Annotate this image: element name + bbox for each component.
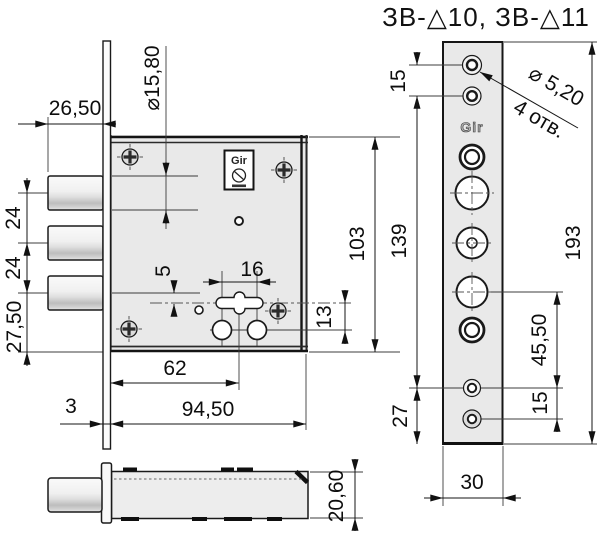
dim-30: 30 [424, 446, 521, 506]
dim-20-60-text: 20,60 [325, 470, 348, 523]
dim-left-chain: 24 24 27,50 [2, 178, 27, 366]
deadbolt-2 [48, 226, 103, 260]
dim-103-text: 103 [346, 226, 369, 261]
dim-13: 13 [313, 290, 345, 344]
small-hole [195, 306, 203, 314]
brand-logo-text: Gir [231, 155, 248, 167]
lock-technical-drawing: ЗВ-△10, ЗВ-△11 [0, 0, 600, 546]
brand-label-box: Gir [225, 151, 254, 190]
dim-45-50-text: 45,50 [528, 314, 551, 367]
dim-fp-15-bottom: 15 [529, 388, 557, 432]
bolt-side [48, 478, 102, 512]
dim-45-50: 45,50 [528, 292, 557, 388]
faceplate-side [102, 463, 112, 523]
dim-fp-15-bottom-text: 15 [529, 391, 552, 414]
dim-bolt-dia-text: ⌀15,80 [141, 45, 164, 110]
brand-fine-print [232, 185, 246, 188]
fixing-hole-left [213, 321, 232, 340]
hole-note-count-text: 4 отв. [510, 96, 569, 144]
dim-27-50-text: 27,50 [3, 301, 26, 354]
center-pin-hole [235, 217, 243, 225]
main-view: Gir 26,50 ⌀15,80 [2, 41, 400, 449]
dim-27-text: 27 [389, 404, 412, 427]
drawing-sheet: ЗВ-△10, ЗВ-△11 [0, 0, 600, 546]
side-view: 20,60 [48, 459, 363, 531]
dim-24b-text: 24 [2, 256, 25, 280]
dim-193-text: 193 [562, 225, 585, 260]
dim-13-text: 13 [313, 305, 336, 328]
dim-26-50-text: 26,50 [49, 97, 102, 120]
deadbolt-1 [48, 176, 103, 210]
dim-20-60: 20,60 [310, 459, 363, 531]
dim-139-text: 139 [388, 223, 411, 258]
dim-5-text: 5 [152, 265, 175, 277]
fixing-hole-right [248, 321, 267, 340]
dim-62-text: 62 [163, 357, 186, 380]
dim-26-50: 26,50 [18, 97, 116, 172]
deadbolt-cylinders [48, 176, 103, 310]
dim-fp-15-top-text: 15 [387, 69, 410, 92]
dim-fp-left-chain: 15 139 27 [387, 52, 417, 444]
dim-94-50-text: 94,50 [182, 398, 235, 421]
faceplate-logo-text: Gir [460, 119, 483, 135]
dim-16-text: 16 [240, 258, 263, 281]
dim-3-text: 3 [65, 395, 77, 418]
faceplate-edge [103, 41, 111, 449]
faceplate-view: Gir ⌀ 5,20 4 отв. [387, 42, 597, 506]
dim-24a-text: 24 [2, 206, 25, 230]
dim-62: 62 [111, 357, 239, 383]
page-title: ЗВ-△10, ЗВ-△11 [382, 2, 590, 32]
dim-30-text: 30 [460, 471, 483, 494]
deadbolt-3 [48, 276, 103, 310]
